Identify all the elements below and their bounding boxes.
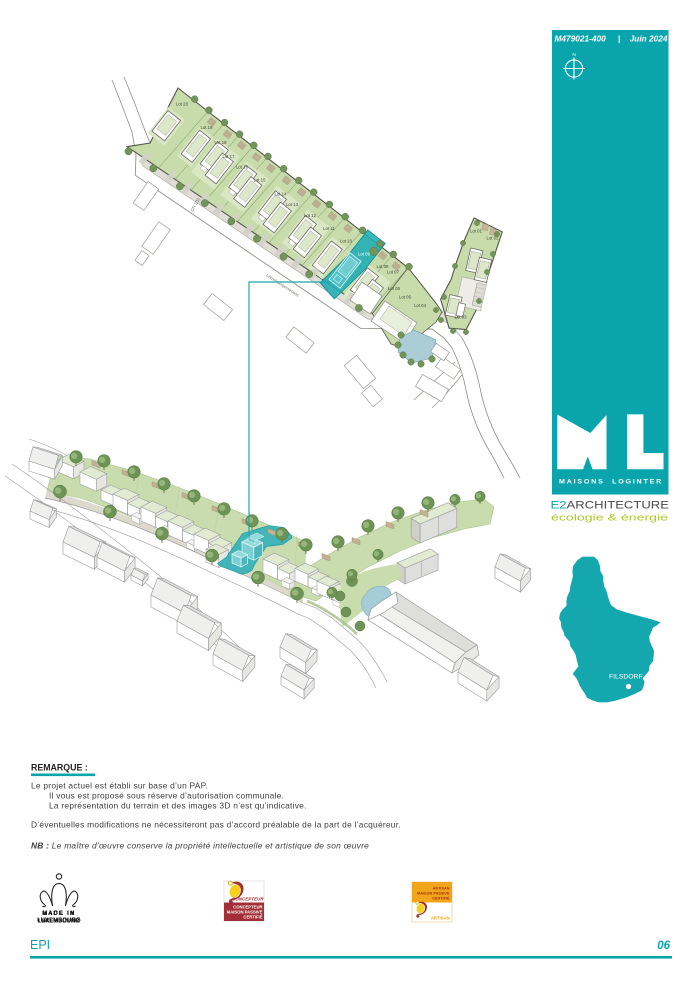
svg-text:Lot 05: Lot 05	[399, 295, 412, 300]
svg-text:Lot 09: Lot 09	[358, 252, 371, 257]
svg-text:06: 06	[657, 940, 670, 952]
svg-text:Lot 14: Lot 14	[275, 192, 288, 197]
svg-text:MADE IN: MADE IN	[42, 911, 75, 917]
svg-text:MAISON PASSIVE: MAISON PASSIVE	[417, 892, 450, 896]
svg-text:REMARQUE :: REMARQUE :	[31, 763, 88, 773]
svg-text:Lot 03: Lot 03	[455, 315, 468, 320]
svg-text:Lot 20: Lot 20	[176, 102, 189, 107]
svg-text:Lot 19: Lot 19	[201, 125, 214, 130]
svg-text:écologie & énergie: écologie & énergie	[551, 513, 668, 523]
svg-text:Lot 10: Lot 10	[340, 239, 353, 244]
svg-text:Lot 13: Lot 13	[286, 202, 299, 207]
svg-text:Lot 02: Lot 02	[487, 236, 500, 241]
svg-text:La représentation du terrain e: La représentation du terrain et des imag…	[49, 801, 307, 811]
svg-text:Lot 04: Lot 04	[414, 303, 427, 308]
svg-text:Lot 07: Lot 07	[387, 270, 400, 275]
svg-text:Lot 15: Lot 15	[254, 178, 267, 183]
svg-text:CONCEPTEUR: CONCEPTEUR	[232, 897, 264, 902]
svg-text:|: |	[618, 34, 620, 44]
svg-text:Lot 12: Lot 12	[304, 213, 317, 218]
svg-text:NB : Le maître d’œuvre conserv: NB : Le maître d’œuvre conserve la propr…	[31, 841, 369, 851]
svg-text:Lot 18: Lot 18	[215, 140, 228, 145]
svg-text:Il vous est proposé sous réser: Il vous est proposé sous réserve d’autor…	[49, 791, 284, 801]
svg-text:ARTISAN: ARTISAN	[433, 887, 450, 891]
svg-text:ARTISAN: ARTISAN	[431, 916, 450, 921]
svg-text:LUXEMBOURG: LUXEMBOURG	[37, 918, 81, 924]
svg-text:Lot 01: Lot 01	[470, 229, 483, 234]
svg-text:M479021-400: M479021-400	[555, 34, 607, 44]
svg-text:Juin 2024: Juin 2024	[630, 34, 668, 44]
svg-text:Lot 16: Lot 16	[236, 165, 249, 170]
svg-text:Lot 11: Lot 11	[323, 226, 335, 231]
svg-text:Lot 06: Lot 06	[388, 286, 401, 291]
svg-text:CERTIFIÉ: CERTIFIÉ	[243, 915, 262, 920]
svg-text:Le projet actuel est établi su: Le projet actuel est établi sur base d’u…	[31, 781, 208, 791]
svg-text:E2ARCHITECTURE: E2ARCHITECTURE	[551, 500, 670, 512]
svg-text:FILSDORF: FILSDORF	[609, 674, 643, 681]
svg-text:Lot 08: Lot 08	[377, 264, 390, 269]
svg-text:N: N	[572, 52, 575, 57]
svg-text:Lot 17: Lot 17	[223, 154, 236, 159]
svg-text:MAISONS LOGINTER: MAISONS LOGINTER	[559, 479, 663, 486]
svg-text:D’éventuelles modifications ne: D’éventuelles modifications ne nécessite…	[31, 820, 401, 830]
svg-text:CERTIFIÉ: CERTIFIÉ	[432, 896, 450, 901]
svg-text:EPI: EPI	[30, 938, 50, 952]
